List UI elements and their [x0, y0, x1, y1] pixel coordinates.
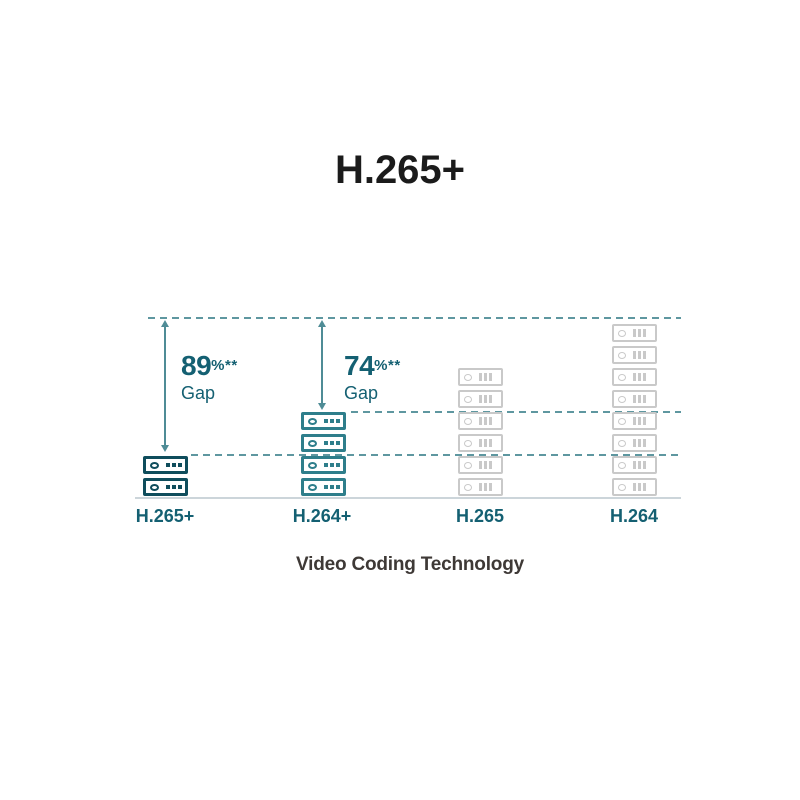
server-icon	[143, 456, 188, 474]
x-axis-title: Video Coding Technology	[20, 554, 800, 576]
category-label-h264: H.264	[564, 506, 704, 527]
vent-bars-icon	[633, 395, 646, 403]
vent-bars-icon	[479, 461, 492, 469]
category-label-h265: H.265	[410, 506, 550, 527]
server-icon	[458, 434, 503, 452]
vent-bars-icon	[479, 439, 492, 447]
vent-bars-icon	[166, 485, 182, 489]
led-ring-icon	[618, 396, 626, 403]
led-ring-icon	[618, 462, 626, 469]
vent-bars-icon	[479, 395, 492, 403]
led-ring-icon	[618, 484, 626, 491]
vent-bars-icon	[633, 483, 646, 491]
led-ring-icon	[308, 484, 317, 491]
led-ring-icon	[308, 418, 317, 425]
vent-bars-icon	[324, 419, 340, 423]
server-icon	[612, 412, 657, 430]
gap-annotation-h265plus: 89%** Gap	[181, 352, 238, 402]
vent-bars-icon	[324, 441, 340, 445]
server-icon	[612, 324, 657, 342]
server-icon	[301, 456, 346, 474]
server-icon	[301, 478, 346, 496]
server-icon	[458, 412, 503, 430]
led-ring-icon	[464, 462, 472, 469]
vent-bars-icon	[633, 417, 646, 425]
led-ring-icon	[464, 484, 472, 491]
gap-arrow-h264plus	[321, 326, 323, 404]
vent-bars-icon	[324, 463, 340, 467]
category-label-h264plus: H.264+	[252, 506, 392, 527]
server-icon	[612, 390, 657, 408]
server-stack-h264	[612, 324, 657, 496]
server-icon	[458, 456, 503, 474]
category-label-h265plus: H.265+	[95, 506, 235, 527]
infographic-canvas: H.265+ 89%** Gap 74%** Gap H.265+ H.264+…	[0, 0, 800, 800]
led-ring-icon	[308, 440, 317, 447]
server-stack-h265plus	[143, 456, 188, 496]
server-stack-h264plus	[301, 412, 346, 496]
led-ring-icon	[150, 484, 159, 491]
server-icon	[612, 456, 657, 474]
vent-bars-icon	[633, 439, 646, 447]
server-icon	[301, 434, 346, 452]
server-icon	[301, 412, 346, 430]
led-ring-icon	[618, 418, 626, 425]
gap-word: Gap	[181, 384, 238, 402]
vent-bars-icon	[633, 461, 646, 469]
reference-line-h264-top	[148, 317, 681, 319]
vent-bars-icon	[166, 463, 182, 467]
server-icon	[458, 390, 503, 408]
x-axis-baseline	[135, 497, 681, 499]
gap-arrow-h265plus	[164, 326, 166, 446]
led-ring-icon	[618, 374, 626, 381]
gap-percent-value: 89	[181, 350, 211, 381]
led-ring-icon	[618, 440, 626, 447]
vent-bars-icon	[633, 351, 646, 359]
vent-bars-icon	[633, 329, 646, 337]
server-icon	[612, 478, 657, 496]
page-title: H.265+	[0, 148, 800, 193]
led-ring-icon	[150, 462, 159, 469]
gap-percent-suffix: %**	[374, 357, 401, 374]
vent-bars-icon	[479, 417, 492, 425]
led-ring-icon	[618, 330, 626, 337]
reference-line-h265plus-top	[191, 454, 681, 456]
vent-bars-icon	[479, 373, 492, 381]
server-icon	[143, 478, 188, 496]
led-ring-icon	[464, 418, 472, 425]
gap-percent-value: 74	[344, 350, 374, 381]
led-ring-icon	[464, 440, 472, 447]
server-icon	[458, 478, 503, 496]
server-icon	[612, 346, 657, 364]
server-icon	[612, 434, 657, 452]
led-ring-icon	[464, 374, 472, 381]
led-ring-icon	[464, 396, 472, 403]
server-icon	[458, 368, 503, 386]
vent-bars-icon	[479, 483, 492, 491]
led-ring-icon	[308, 462, 317, 469]
server-stack-h265	[458, 368, 503, 496]
vent-bars-icon	[324, 485, 340, 489]
gap-word: Gap	[344, 384, 401, 402]
gap-percent-suffix: %**	[211, 357, 238, 374]
vent-bars-icon	[633, 373, 646, 381]
gap-annotation-h264plus: 74%** Gap	[344, 352, 401, 402]
led-ring-icon	[618, 352, 626, 359]
server-icon	[612, 368, 657, 386]
